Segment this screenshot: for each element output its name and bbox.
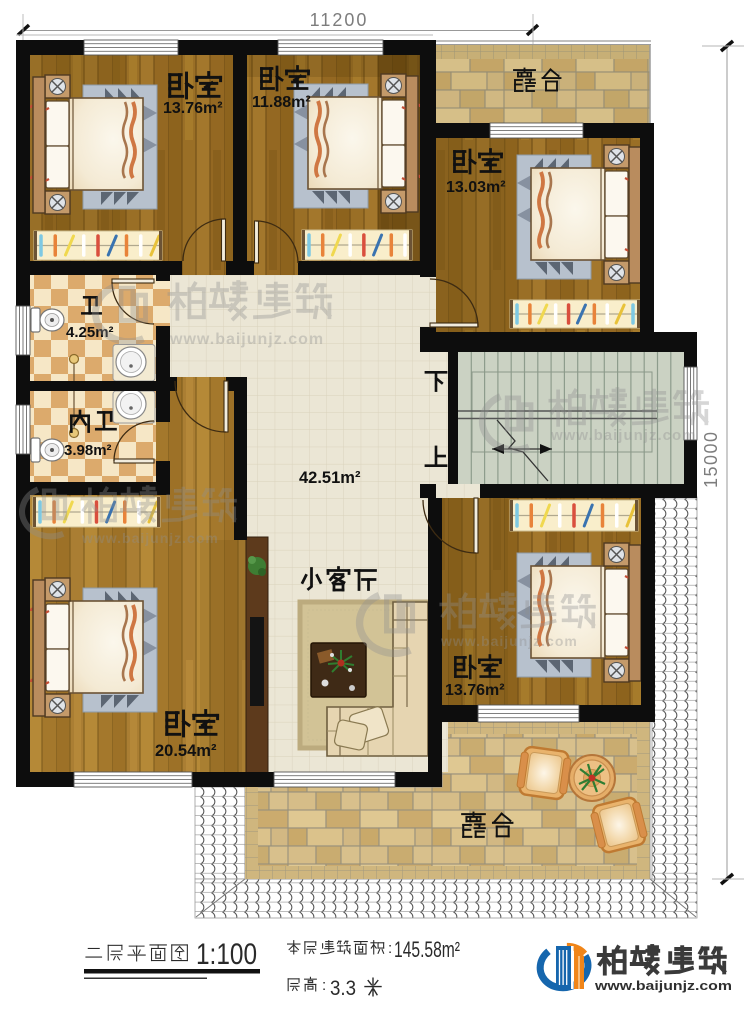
svg-text:15000: 15000 [701, 430, 721, 488]
svg-text:13.03m²: 13.03m² [446, 179, 506, 196]
svg-text:20.54m²: 20.54m² [155, 742, 217, 760]
svg-text:11200: 11200 [310, 10, 369, 30]
svg-text:www.baijunjz.com: www.baijunjz.com [550, 427, 696, 444]
svg-text:145.58m²: 145.58m² [394, 937, 460, 962]
svg-text:www.baijunjz.com: www.baijunjz.com [81, 530, 219, 546]
svg-text:www.baijunjz.com: www.baijunjz.com [440, 633, 578, 649]
svg-text:www.baijunjz.com: www.baijunjz.com [169, 331, 324, 348]
svg-text::: : [322, 977, 326, 994]
svg-text:13.76m²: 13.76m² [163, 100, 223, 117]
svg-text:11.88m²: 11.88m² [252, 94, 311, 111]
svg-text:3.3: 3.3 [330, 977, 356, 1000]
svg-text:www.baijunjz.com: www.baijunjz.com [594, 979, 732, 993]
svg-text:42.51m²: 42.51m² [299, 469, 361, 487]
svg-text:3.98m²: 3.98m² [64, 442, 112, 459]
svg-text:13.76m²: 13.76m² [445, 682, 505, 699]
svg-text:1:100: 1:100 [196, 938, 257, 971]
svg-text::: : [388, 940, 392, 957]
